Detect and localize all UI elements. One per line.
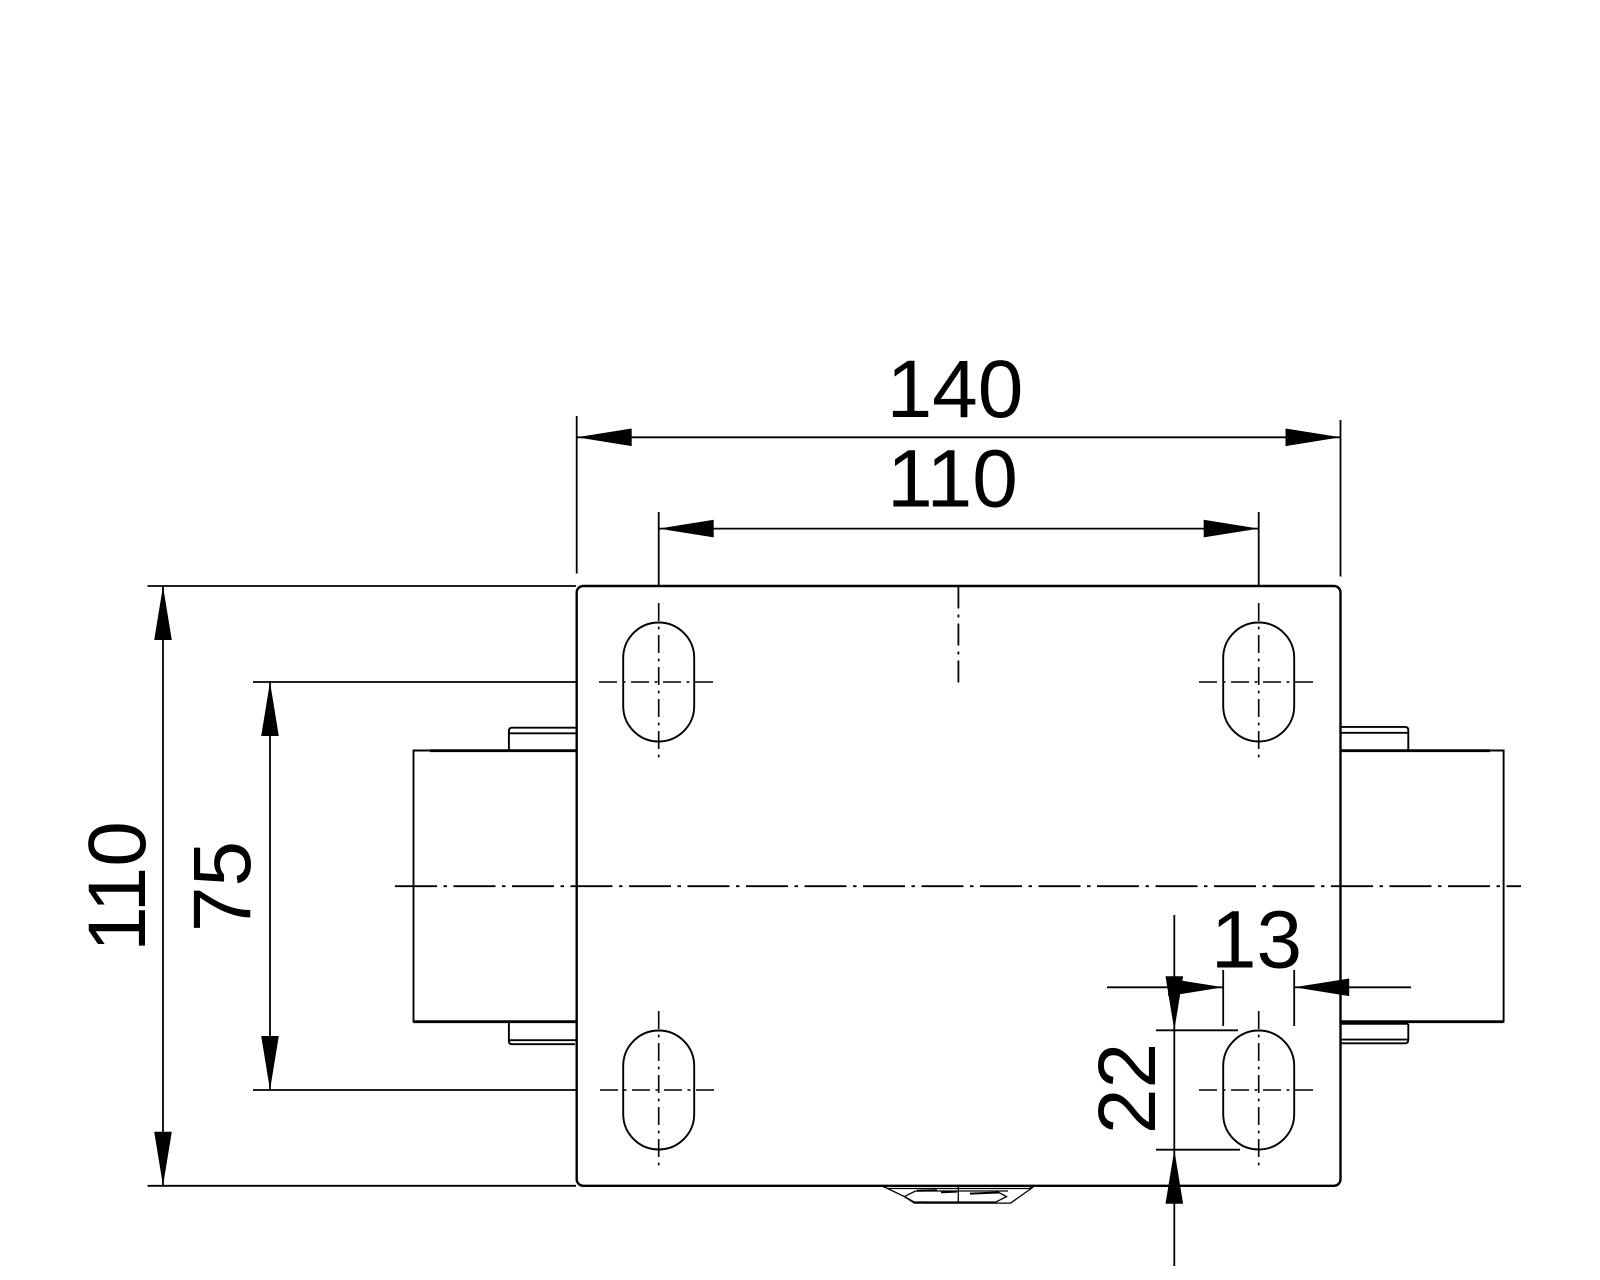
svg-text:110: 110 [887,434,1018,525]
svg-text:75: 75 [177,841,268,932]
svg-text:110: 110 [72,821,163,952]
svg-text:13: 13 [1211,895,1302,986]
svg-text:22: 22 [1082,1043,1173,1134]
svg-text:140: 140 [887,344,1024,435]
